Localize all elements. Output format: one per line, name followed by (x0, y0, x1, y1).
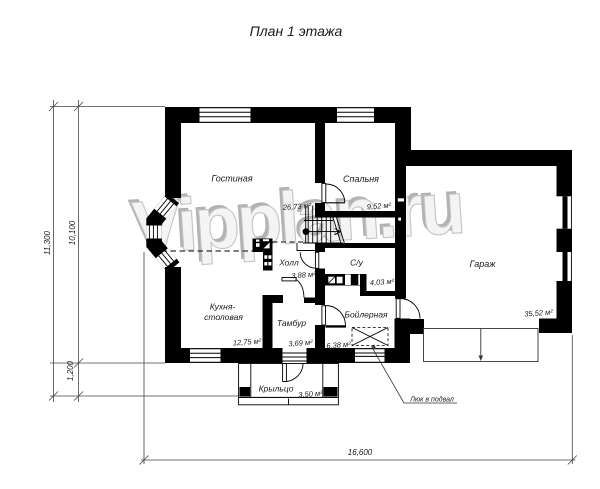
svg-text:С/у: С/у (350, 258, 364, 268)
svg-text:9,52 м²: 9,52 м² (367, 201, 392, 212)
svg-text:6,38 м²: 6,38 м² (326, 340, 351, 351)
svg-text:10,100: 10,100 (68, 220, 77, 245)
svg-text:Кухня-: Кухня- (210, 302, 236, 312)
svg-text:Спальня: Спальня (343, 174, 379, 184)
svg-text:Холл: Холл (278, 258, 299, 268)
svg-text:Крыльцо: Крыльцо (259, 384, 294, 394)
svg-text:столовая: столовая (204, 312, 243, 322)
svg-text:План 1 этажа: План 1 этажа (250, 23, 343, 39)
svg-text:11,300: 11,300 (43, 231, 52, 255)
svg-text:Люк в подвал: Люк в подвал (409, 396, 454, 404)
svg-text:3,69 м²: 3,69 м² (288, 338, 313, 349)
svg-text:Гостиная: Гостиная (211, 174, 252, 184)
svg-text:4,03 м²: 4,03 м² (370, 277, 395, 288)
svg-text:16,600: 16,600 (348, 448, 373, 457)
svg-text:3,50 м²: 3,50 м² (298, 389, 323, 400)
svg-text:Гараж: Гараж (470, 259, 497, 269)
svg-text:Тамбур: Тамбур (277, 318, 306, 328)
svg-text:1,200: 1,200 (66, 360, 75, 381)
svg-text:3,88 м²: 3,88 м² (291, 270, 316, 281)
svg-text:Бойлерная: Бойлерная (344, 310, 388, 320)
